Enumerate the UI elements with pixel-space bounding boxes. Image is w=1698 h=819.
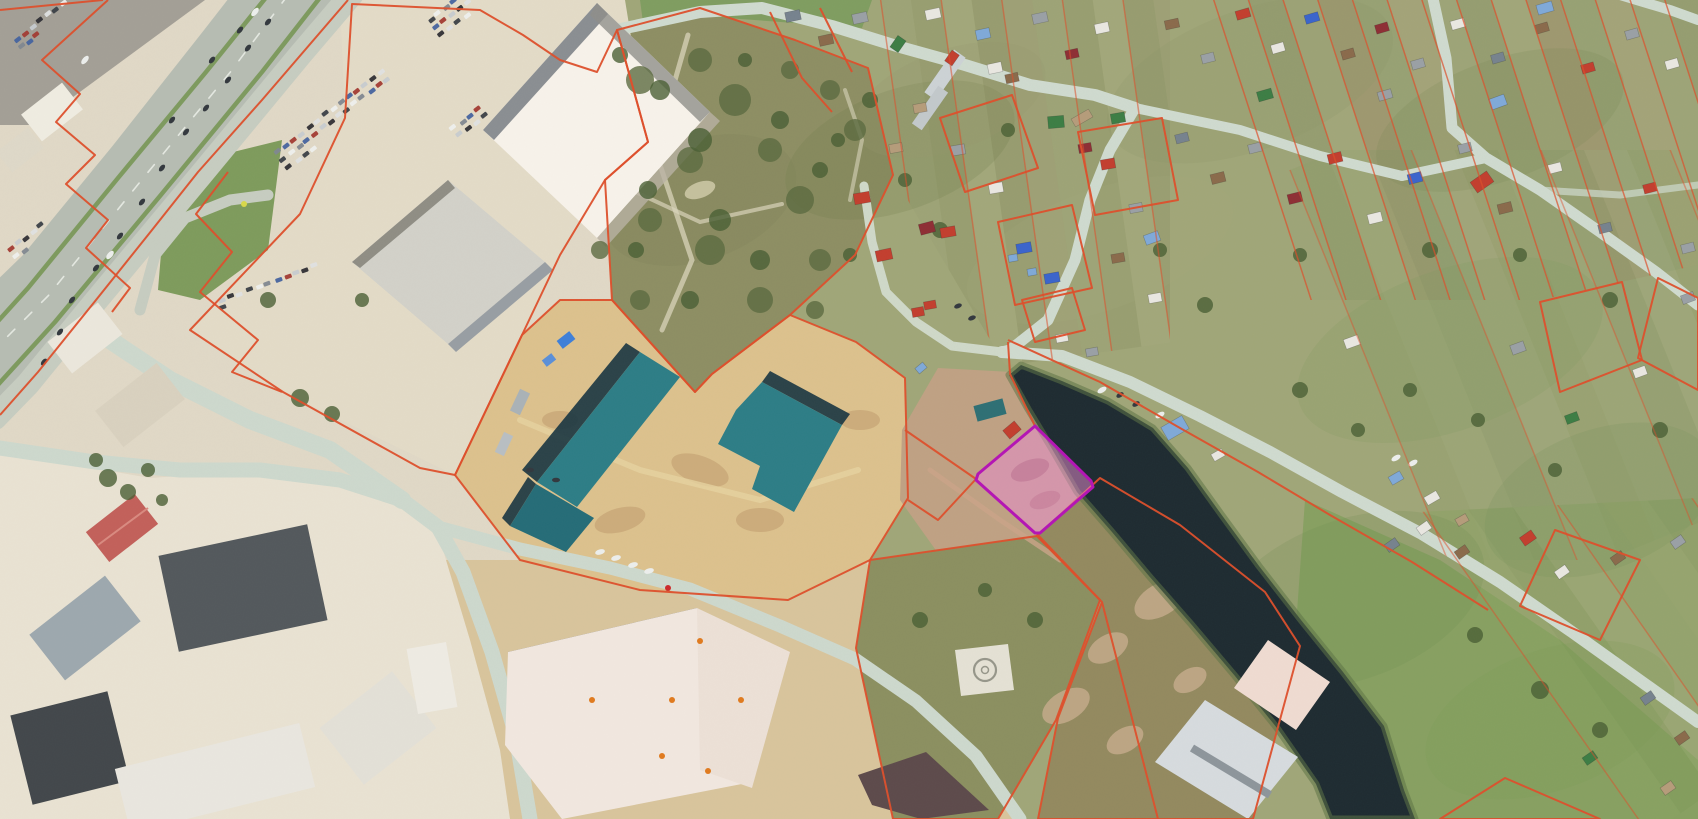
grain-overlay bbox=[0, 0, 1698, 819]
satellite-map-canvas[interactable] bbox=[0, 0, 1698, 819]
map-viewport[interactable] bbox=[0, 0, 1698, 819]
